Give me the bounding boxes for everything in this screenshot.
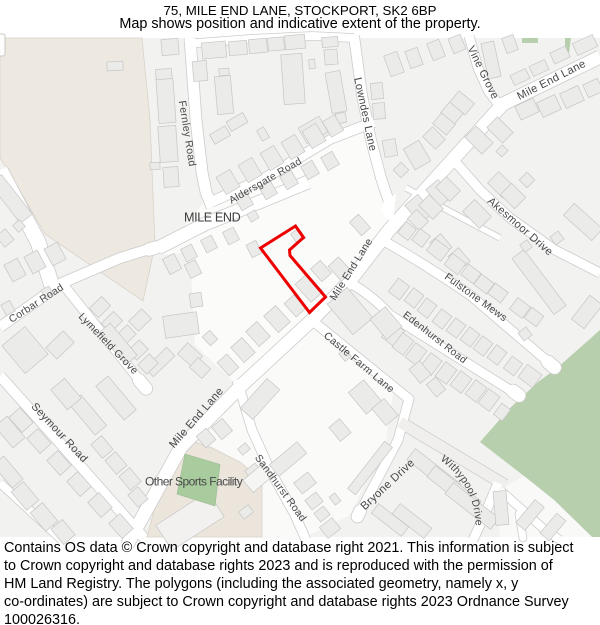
svg-text:MILE END: MILE END	[184, 211, 241, 225]
svg-text:Other Sports Facility: Other Sports Facility	[145, 475, 243, 489]
